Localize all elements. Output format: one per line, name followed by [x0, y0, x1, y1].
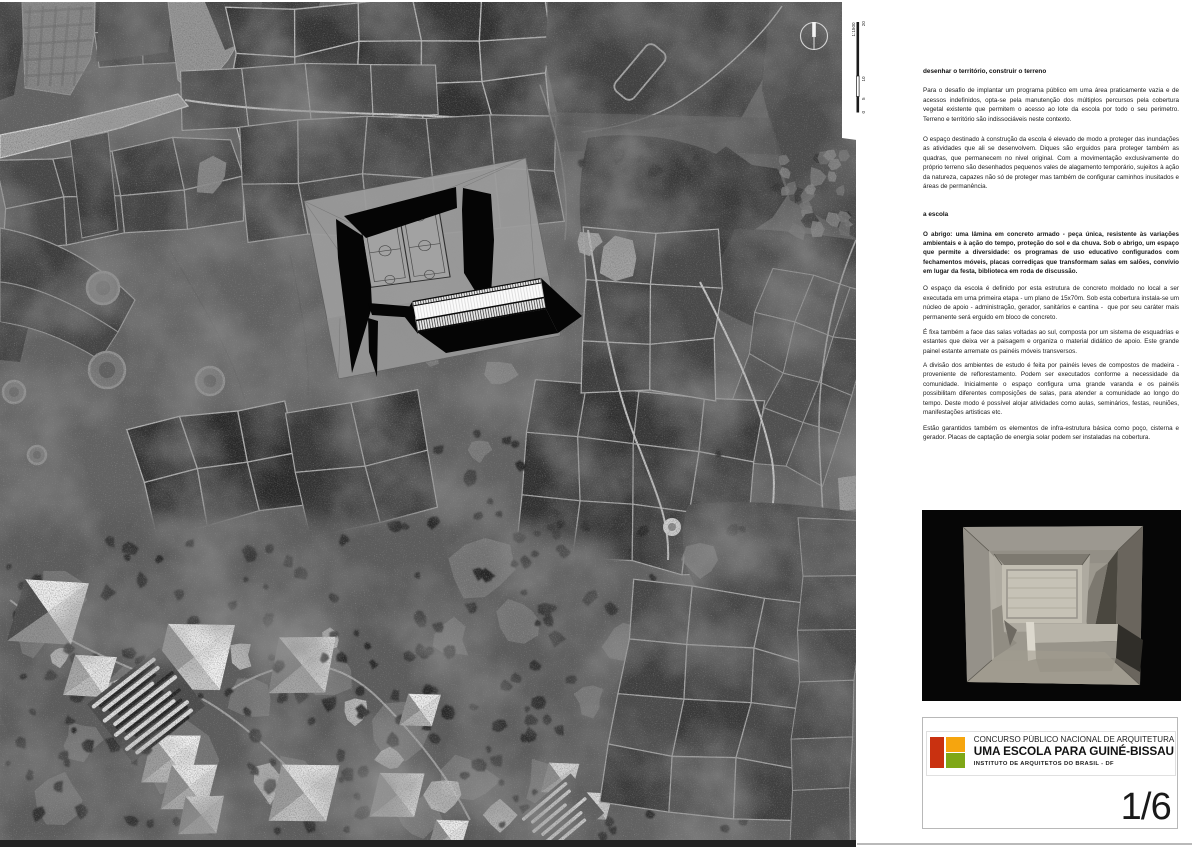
svg-text:10: 10	[861, 76, 866, 82]
svg-text:5: 5	[861, 97, 866, 100]
svg-text:1:1500: 1:1500	[851, 22, 856, 36]
svg-text:0: 0	[861, 111, 866, 114]
svg-text:20: 20	[861, 21, 866, 26]
